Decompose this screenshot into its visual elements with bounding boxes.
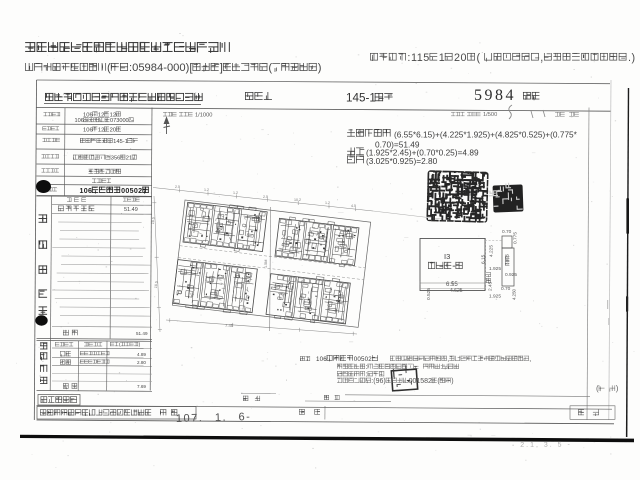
- svg-text:1.925: 1.925: [489, 294, 501, 300]
- svg-text::05984-000)[: :05984-000)[: [129, 62, 193, 74]
- svg-text:7.69: 7.69: [137, 384, 146, 389]
- svg-text:): ): [139, 342, 141, 348]
- svg-text:4.5: 4.5: [351, 204, 356, 208]
- svg-text:106: 106: [316, 356, 327, 363]
- svg-text:1.2: 1.2: [204, 188, 209, 192]
- svg-text:0.525: 0.525: [426, 288, 432, 300]
- svg-text:4.89: 4.89: [137, 352, 146, 357]
- svg-text:10.5: 10.5: [151, 217, 156, 224]
- svg-text:20: 20: [110, 128, 116, 134]
- svg-text:1.2: 1.2: [325, 201, 330, 205]
- svg-text:(: (: [477, 52, 481, 64]
- svg-text:- 2.1, 3. 5 -: - 2.1, 3. 5 -: [512, 441, 572, 449]
- svg-text:5984: 5984: [474, 87, 516, 104]
- svg-text:106: 106: [80, 187, 93, 195]
- svg-text:): ): [616, 384, 619, 393]
- svg-text:.): .): [628, 52, 636, 64]
- svg-text:21: 21: [126, 156, 132, 162]
- svg-text:6.15: 6.15: [481, 254, 487, 264]
- svg-text:00502: 00502: [121, 187, 142, 195]
- svg-text:356: 356: [111, 156, 121, 162]
- svg-text:,: ,: [529, 356, 531, 363]
- svg-text:7.45: 7.45: [225, 323, 234, 328]
- svg-text:1.5M: 1.5M: [264, 260, 268, 268]
- svg-text:,: ,: [447, 356, 449, 363]
- svg-text:(: (: [107, 62, 111, 74]
- svg-text:(6.55*6.15)+(4.225*1.925)+(4.8: (6.55*6.15)+(4.225*1.925)+(4.825*0.525)+…: [394, 130, 578, 140]
- svg-text:12: 12: [98, 128, 104, 134]
- svg-text:106: 106: [75, 118, 84, 124]
- svg-text:0.70: 0.70: [502, 229, 512, 235]
- svg-text:073000: 073000: [110, 118, 129, 124]
- svg-text:145-1: 145-1: [346, 92, 376, 105]
- svg-text:1.2: 1.2: [233, 191, 238, 195]
- svg-text:I3: I3: [444, 252, 450, 261]
- svg-text::: :: [366, 371, 368, 378]
- svg-text:2.5: 2.5: [175, 185, 180, 189]
- svg-text:001582: 001582: [409, 378, 432, 385]
- svg-text:106: 106: [83, 128, 93, 134]
- svg-text::: :: [366, 364, 368, 371]
- svg-text:4.625: 4.625: [450, 288, 463, 294]
- svg-text:2.80: 2.80: [137, 360, 146, 365]
- svg-text:): ): [318, 62, 322, 74]
- svg-text::: :: [440, 364, 442, 371]
- svg-text:0.775: 0.775: [513, 232, 519, 244]
- svg-text:]: ]: [220, 62, 223, 74]
- svg-text:(: (: [268, 62, 272, 74]
- svg-text:(: (: [119, 342, 121, 348]
- svg-text:20: 20: [454, 52, 467, 64]
- svg-text:00502: 00502: [354, 356, 373, 363]
- svg-text::(96): :(96): [371, 378, 385, 385]
- svg-text:2.45: 2.45: [488, 281, 494, 291]
- svg-text:): ): [451, 378, 453, 385]
- svg-text:4.225: 4.225: [489, 245, 495, 257]
- svg-text:145-1: 145-1: [113, 139, 128, 145]
- svg-text:(: (: [596, 384, 599, 393]
- svg-text:1/500: 1/500: [483, 112, 497, 118]
- svg-text:10.2: 10.2: [294, 198, 301, 202]
- svg-text:51.49: 51.49: [136, 331, 148, 336]
- svg-text:0.70: 0.70: [501, 286, 511, 292]
- svg-text:107. 1. 6‑​: 107. 1. 6‑​: [176, 411, 252, 425]
- svg-text:,: ,: [540, 52, 544, 64]
- svg-text:-: -: [452, 261, 455, 272]
- svg-text:(3.025*0.925)=2.80: (3.025*0.925)=2.80: [366, 156, 438, 166]
- svg-text:51.49: 51.49: [124, 207, 138, 213]
- svg-text:10.5: 10.5: [154, 281, 159, 288]
- svg-text:1: 1: [439, 52, 446, 64]
- svg-text:2.5: 2.5: [263, 195, 268, 199]
- svg-text:1/1000: 1/1000: [195, 112, 212, 118]
- svg-text:4.250: 4.250: [512, 288, 517, 300]
- svg-text::115: :115: [407, 52, 429, 64]
- svg-text:0.925: 0.925: [505, 272, 517, 278]
- svg-text:1.925: 1.925: [489, 266, 501, 272]
